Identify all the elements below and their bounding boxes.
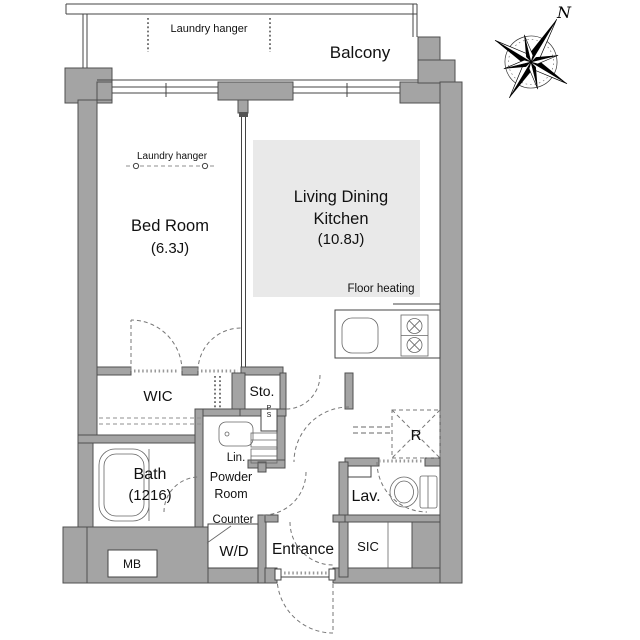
ldk-size-label: (10.8J) — [318, 231, 365, 248]
kitchen-counter — [335, 304, 440, 358]
bath-label: Bath — [134, 466, 167, 483]
toilet — [390, 476, 437, 508]
bedroom-size-label: (6.3J) — [151, 240, 189, 257]
ldk-label-line2: Kitchen — [313, 210, 368, 228]
ldk-label-line1: Living Dining — [294, 188, 388, 206]
compass-rose: N — [473, 0, 592, 120]
lav-shelf — [348, 466, 371, 477]
floor-plan-svg: Laundry hanger Balcony Laundry hanger Be… — [0, 0, 640, 640]
pipe-space-label: PS — [266, 405, 273, 419]
bathtub — [99, 449, 149, 521]
linen-shelves — [251, 433, 277, 463]
linen-label: Lin. — [227, 452, 246, 464]
washbasin — [219, 422, 253, 446]
floor-heating-label: Floor heating — [347, 283, 414, 295]
bedroom-ldk-partition — [239, 112, 248, 367]
storage-label: Sto. — [250, 383, 275, 399]
bedroom-laundry-rail — [126, 163, 215, 168]
entrance-label: Entrance — [272, 541, 334, 558]
washer-dryer-label: W/D — [219, 543, 248, 560]
bath-size-label: (1216) — [128, 487, 171, 504]
compass-north-label: N — [556, 3, 572, 22]
lavatory-label: Lav. — [351, 488, 380, 505]
bedroom-label: Bed Room — [131, 217, 209, 235]
bedroom-window — [112, 83, 218, 97]
balcony-laundry-hanger-label: Laundry hanger — [170, 23, 247, 35]
balcony-label: Balcony — [330, 43, 391, 62]
bedroom-laundry-hanger-label: Laundry hanger — [137, 151, 208, 162]
kitchen-back-dashes — [353, 427, 392, 433]
powder-room-label-line2: Room — [214, 487, 247, 501]
sic-label: SIC — [357, 539, 379, 554]
counter-label: Counter — [213, 514, 254, 526]
ldk-window — [293, 83, 400, 97]
wic-label: WIC — [143, 388, 172, 405]
powder-room-label-line1: Powder — [210, 470, 252, 484]
meter-box-label: MB — [123, 557, 141, 571]
refrigerator-label: R — [411, 427, 422, 444]
balcony-railing — [66, 4, 418, 80]
floor-plan-page: Laundry hanger Balcony Laundry hanger Be… — [0, 0, 640, 640]
